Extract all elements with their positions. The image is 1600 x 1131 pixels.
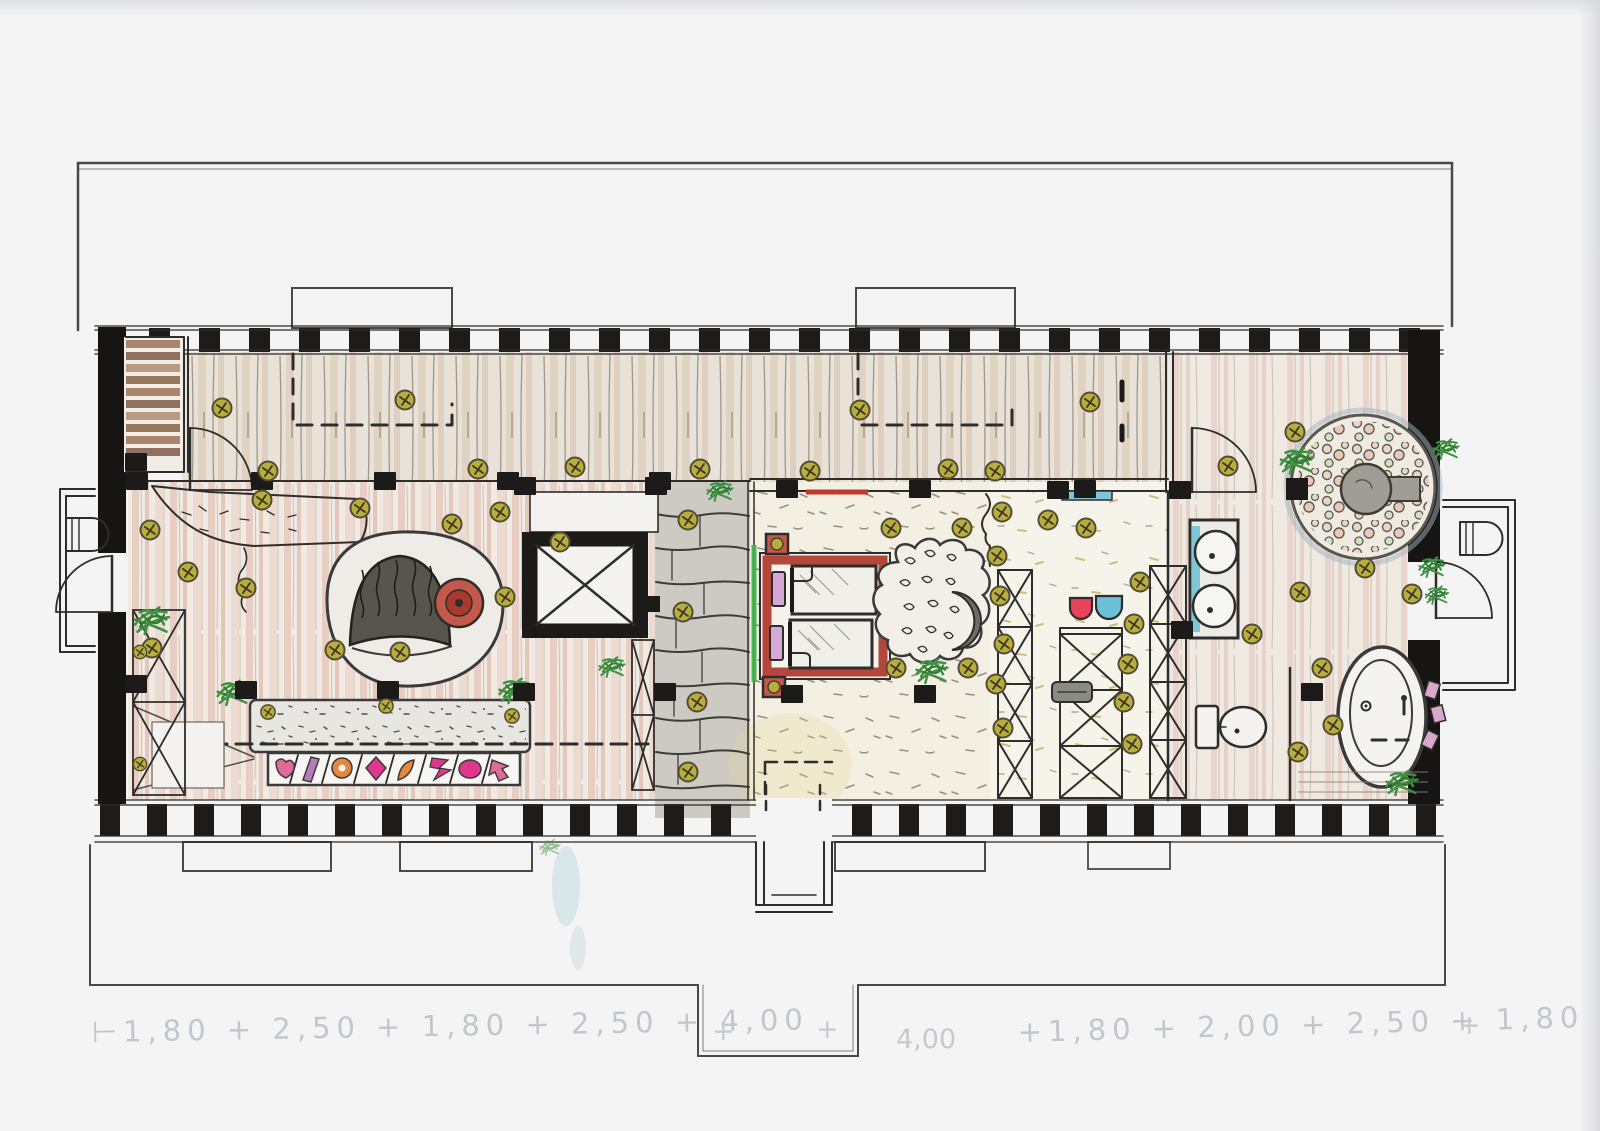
- toilet: [1196, 706, 1266, 748]
- scan-edge-top: [0, 0, 1600, 16]
- roof-dormer-bottom-2: [400, 842, 532, 871]
- mosaic-oval: [459, 760, 481, 778]
- staircase: [124, 337, 188, 472]
- dimension-plus-1: +: [712, 1016, 735, 1047]
- roof-dormer-bottom-3: [835, 842, 985, 871]
- floor-plan-drawing: ⊢1,80 + 2,50 + 1,80 + 2,50 + 4,00 + + 4,…: [0, 0, 1600, 1131]
- chair-red: [1070, 598, 1092, 619]
- shower-entry-bar: [1388, 477, 1420, 501]
- mattress-top: [792, 566, 876, 614]
- round-shower: [1286, 410, 1440, 564]
- roof-dormer-top-left: [292, 288, 452, 328]
- sink-bottom: [1193, 585, 1235, 627]
- dimension-right-value: 4,00: [896, 1024, 956, 1055]
- roof-dormer-bottom-1: [183, 842, 331, 871]
- double-bed: [760, 553, 890, 679]
- nightstand-top: [766, 534, 788, 554]
- pillow-bottom: [770, 626, 783, 660]
- grey-bench: [1052, 682, 1092, 702]
- mosaic-strip: [268, 753, 520, 785]
- elevator: [522, 492, 660, 638]
- chair-blue: [1096, 596, 1122, 619]
- floor-plan-scan: ⊢1,80 + 2,50 + 1,80 + 2,50 + 4,00 + + 4,…: [0, 0, 1600, 1131]
- left-wall-lower: [98, 612, 126, 804]
- sink-top: [1195, 531, 1237, 573]
- left-wall-upper: [98, 327, 126, 553]
- mattress-bottom: [790, 620, 872, 668]
- round-side-table: [435, 579, 483, 627]
- pillow-top: [772, 572, 785, 606]
- vanity: [1190, 520, 1238, 638]
- scan-edge-right: [1578, 0, 1600, 1131]
- roof-dormer-bottom-4: [1088, 842, 1170, 869]
- dimension-plus-3: +: [1458, 1010, 1481, 1041]
- shower-platform: [1341, 464, 1391, 514]
- bathtub: [1338, 647, 1426, 787]
- top-timber-wall: [95, 328, 1443, 352]
- roof-dormer-top-center: [856, 288, 1015, 328]
- stair-post: [125, 453, 147, 471]
- dimension-plus-2: +: [816, 1014, 839, 1045]
- elevator-lobby: [530, 492, 658, 532]
- corridor-floor: [182, 352, 1168, 482]
